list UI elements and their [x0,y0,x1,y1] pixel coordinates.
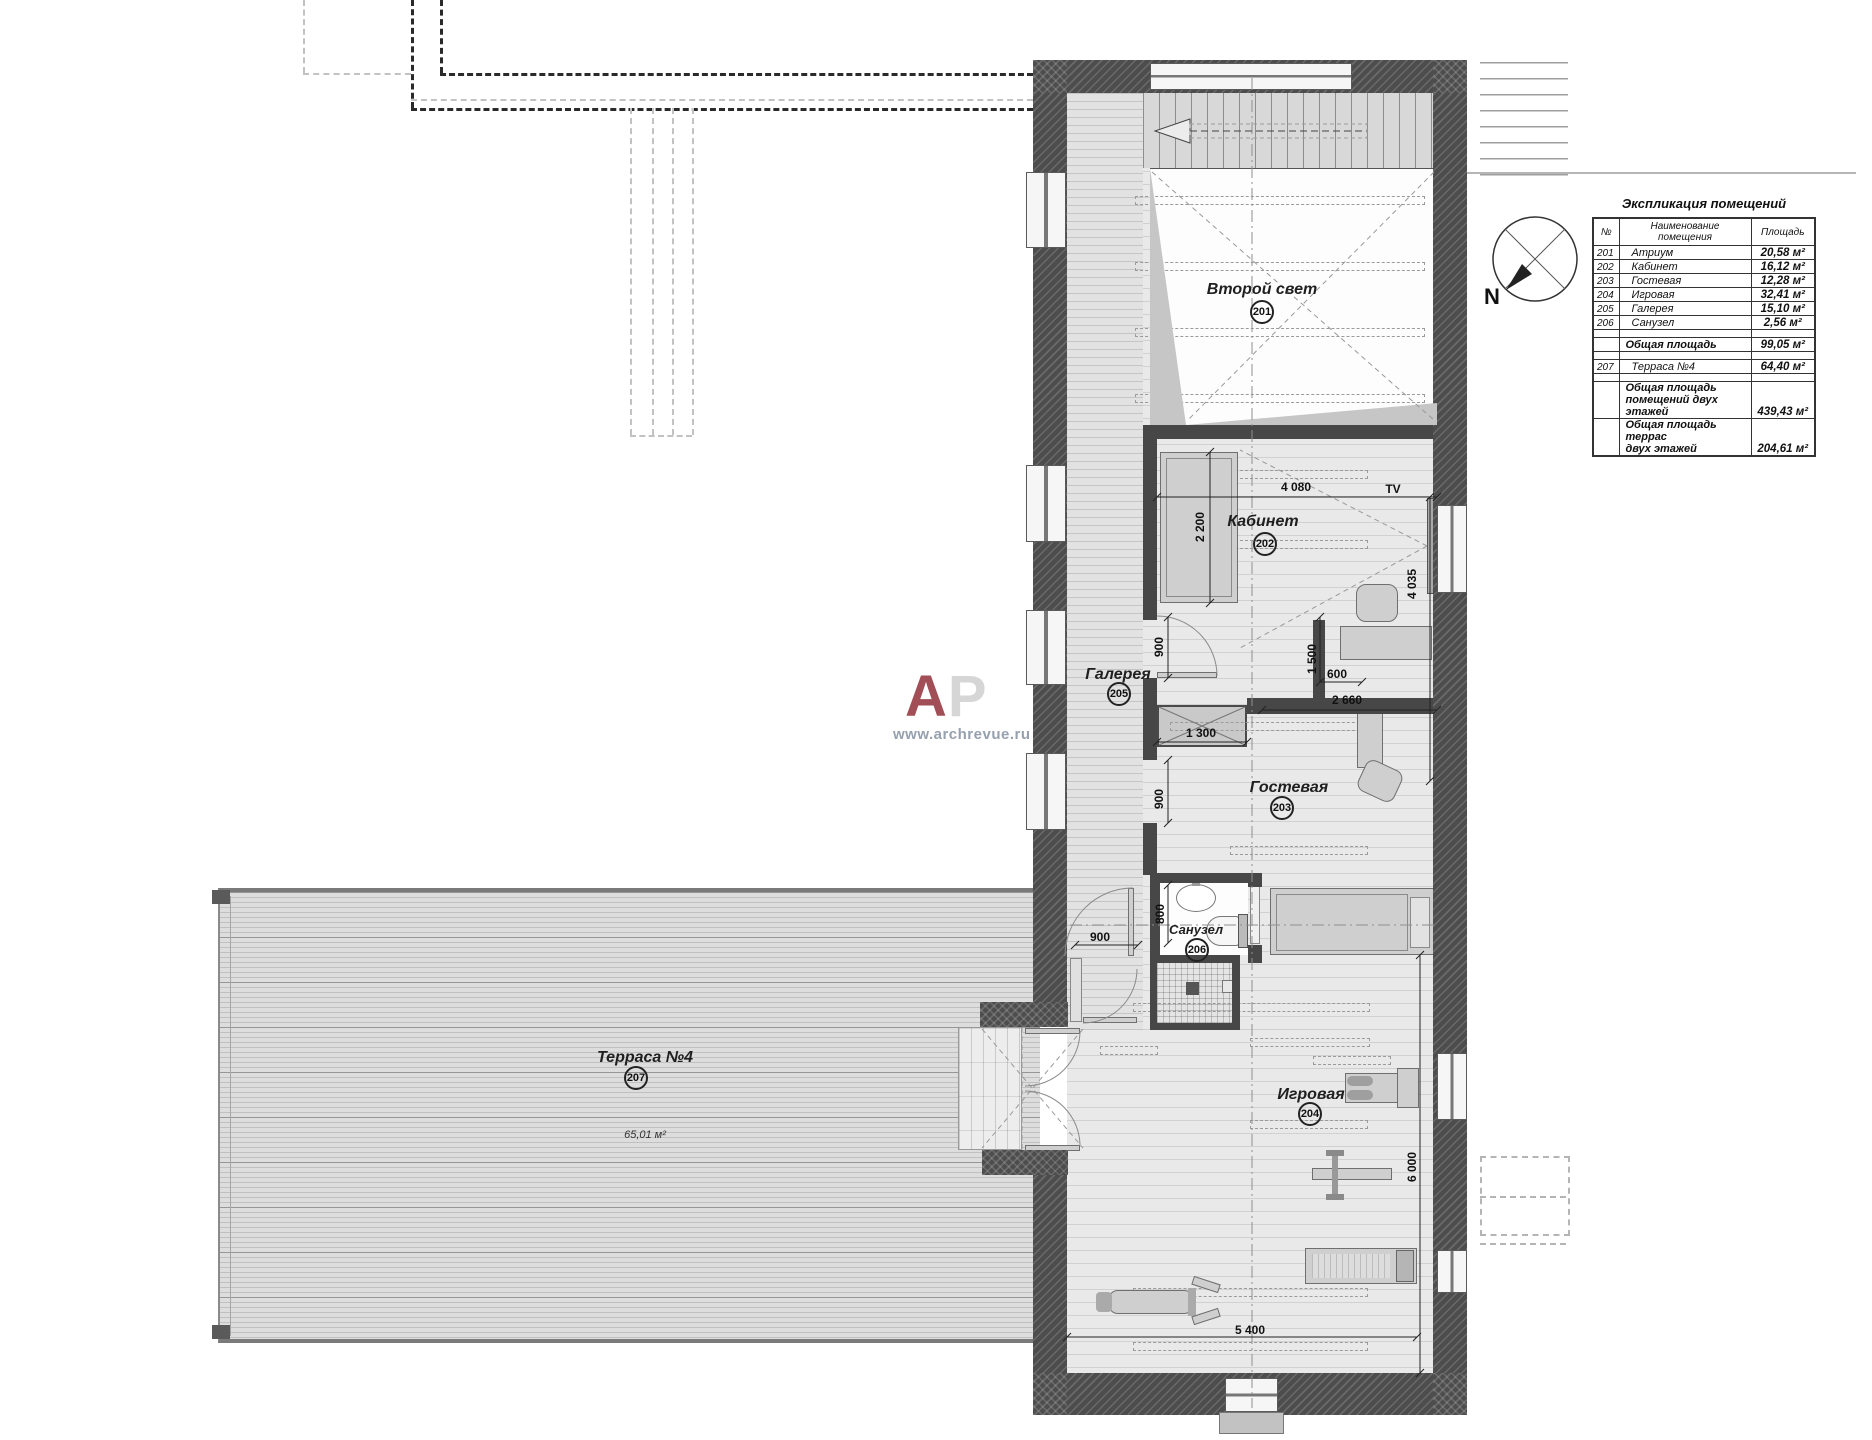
door-leaf-hall [1083,1017,1137,1023]
label-kabinet: Кабинет [1203,513,1323,531]
terrace-column-top [212,890,230,904]
wall-corner-bl [1033,1373,1067,1415]
watermark-logo: АР [905,668,988,726]
dormer-dash-v4 [692,108,694,435]
roof-dash-gray-h [303,73,411,75]
room-number-205: 205 [1107,682,1131,706]
roof-dash-black-h1 [440,73,1033,76]
shower-drain [1186,982,1199,995]
legend-row: Общая площадь террасдвух этажей204,61 м² [1593,419,1815,457]
gym-machine-pad1 [1347,1076,1373,1086]
window-left-1 [1026,172,1066,248]
wall-gallery-3 [1143,823,1157,875]
legend-col-num: № [1593,218,1619,246]
exterior-ladder [1480,62,1568,178]
room-number-204: 204 [1298,1102,1322,1126]
legend-col-name: Наименование помещения [1619,218,1751,246]
joist [1230,846,1368,855]
desk-kabinet [1340,626,1432,660]
window-right-2 [1437,1053,1467,1120]
porch-platform [958,1027,1022,1150]
window-top [1150,63,1352,90]
joist [1250,1038,1370,1047]
window-left-4 [1026,753,1066,830]
exercise-bike-seat [1096,1292,1112,1312]
wall-shower-right [1232,955,1240,1030]
roof-dash-black-v1 [411,0,414,108]
dim-6000: 6 000 [1405,1137,1419,1197]
legend-col-area: Площадь [1751,218,1815,246]
wall-corner-tl [1033,60,1067,93]
terrace-inner-line [230,896,231,1336]
joist [1135,394,1425,403]
wall-corner-tr [1433,60,1467,93]
dim-900-a: 900 [1152,622,1166,672]
eave-line [1467,172,1856,174]
wall-shower-left [1150,955,1157,1030]
wall-atrium-kabinet [1143,425,1437,439]
room-number-202: 202 [1253,532,1277,556]
terrace [218,888,1040,1343]
legend-row: 205Галерея15,10 м² [1593,302,1815,316]
compass-rose [1493,217,1577,301]
door-leaf-gallery [1128,888,1134,956]
porch-wall-bottom [982,1150,1068,1175]
gym-machine-seat [1397,1068,1419,1108]
legend-row: Общая площадь99,05 м² [1593,338,1815,352]
porch-wall-top [980,1002,1068,1027]
roof-dash-black-v2 [440,0,443,73]
dim-800: 800 [1153,889,1167,939]
dormer-dash-v1 [630,108,632,435]
tv-label: TV [1379,482,1407,496]
wall-corner-br [1433,1373,1467,1415]
watermark-letter-p: Р [948,664,988,729]
window-bottom-sill [1219,1412,1284,1434]
joist [1135,328,1425,337]
legend: Экспликация помещений № Наименование пом… [1592,196,1816,457]
label-gostevaya: Гостевая [1229,779,1349,797]
wall-gallery-1 [1143,425,1157,620]
right-dashed-line2 [1480,1243,1566,1245]
floor-plan-canvas: Второй свет 201 Кабинет 202 Гостевая 203… [0,0,1872,1440]
window-bottom [1225,1378,1278,1412]
bed [1270,888,1437,955]
label-atrium: Второй свет [1202,281,1322,299]
watermark-letter-a: А [905,664,948,729]
legend-row: 203Гостевая12,28 м² [1593,274,1815,288]
roof-dash-gray-v [303,0,305,73]
window-right-3 [1437,1250,1467,1293]
legend-row-blank [1593,374,1815,382]
terrace-area-note: 65,01 м² [595,1129,695,1141]
roof-dash-gray-h2 [411,99,1033,101]
dim-2660: 2 660 [1312,693,1382,707]
door-leaf-porch-top [1025,1028,1080,1034]
dormer-dash-h [630,435,692,437]
dim-600: 600 [1312,667,1362,681]
exercise-bike-body [1108,1290,1194,1314]
treadmill-console [1396,1250,1414,1282]
joist [1133,1342,1368,1351]
wall-bath-right-b [1248,945,1262,963]
wall-bath-top [1150,873,1262,883]
dim-900-b: 900 [1152,774,1166,824]
gallery-rail [1070,958,1082,1022]
staircase [1143,93,1437,168]
dim-5400: 5 400 [1215,1323,1285,1337]
legend-row: 202Кабинет16,12 м² [1593,260,1815,274]
bench-press-plate2 [1326,1194,1344,1200]
legend-row-blank [1593,330,1815,338]
wall-shower-bottom [1150,1023,1240,1030]
legend-row: Общая площадьпомещений двух этажей439,43… [1593,382,1815,419]
label-terrace: Терраса №4 [575,1049,715,1067]
dim-4080: 4 080 [1261,480,1331,494]
room-number-206: 206 [1185,938,1209,962]
dormer-dash-v2 [652,108,654,435]
dormer-dash-v3 [672,108,674,435]
window-left-2 [1026,465,1066,542]
roof-dash-black-h2 [411,108,1033,111]
bench-press-bench [1312,1168,1392,1180]
right-dashed-line1 [1480,1196,1566,1198]
window-right-1 [1437,505,1467,593]
dim-1300: 1 300 [1166,726,1236,740]
joist [1100,1046,1158,1055]
watermark-url: www.archrevue.ru [893,726,1031,743]
bench-press-plate1 [1326,1150,1344,1156]
wall-gallery-2 [1143,678,1157,760]
north-label: N [1484,284,1500,310]
legend-row: 206Санузел2,56 м² [1593,316,1815,330]
wall-right [1433,60,1467,1415]
legend-table: № Наименование помещения Площадь 201Атри… [1592,217,1816,457]
dim-2200: 2 200 [1193,497,1207,557]
sink [1176,884,1216,912]
bench-press-bar [1332,1152,1338,1196]
exercise-bike-post [1188,1288,1196,1316]
legend-row: 201Атриум20,58 м² [1593,246,1815,260]
legend-title: Экспликация помещений [1592,196,1816,211]
terrace-column-bottom [212,1325,230,1339]
joist [1313,1056,1391,1065]
joist [1135,262,1425,271]
dim-900-c: 900 [1075,930,1125,944]
room-number-201: 201 [1250,300,1274,324]
joist [1135,196,1425,205]
desk-gostevaya [1357,706,1383,768]
wall-bath-right-a [1248,873,1262,887]
joist [1133,1003,1370,1012]
dim-4035: 4 035 [1405,554,1419,614]
legend-row-blank [1593,352,1815,360]
legend-row: 204Игровая32,41 м² [1593,288,1815,302]
room-number-203: 203 [1270,796,1294,820]
chair-kabinet [1356,584,1398,622]
room-number-207: 207 [624,1066,648,1090]
legend-row: 207Терраса №464,40 м² [1593,360,1815,374]
